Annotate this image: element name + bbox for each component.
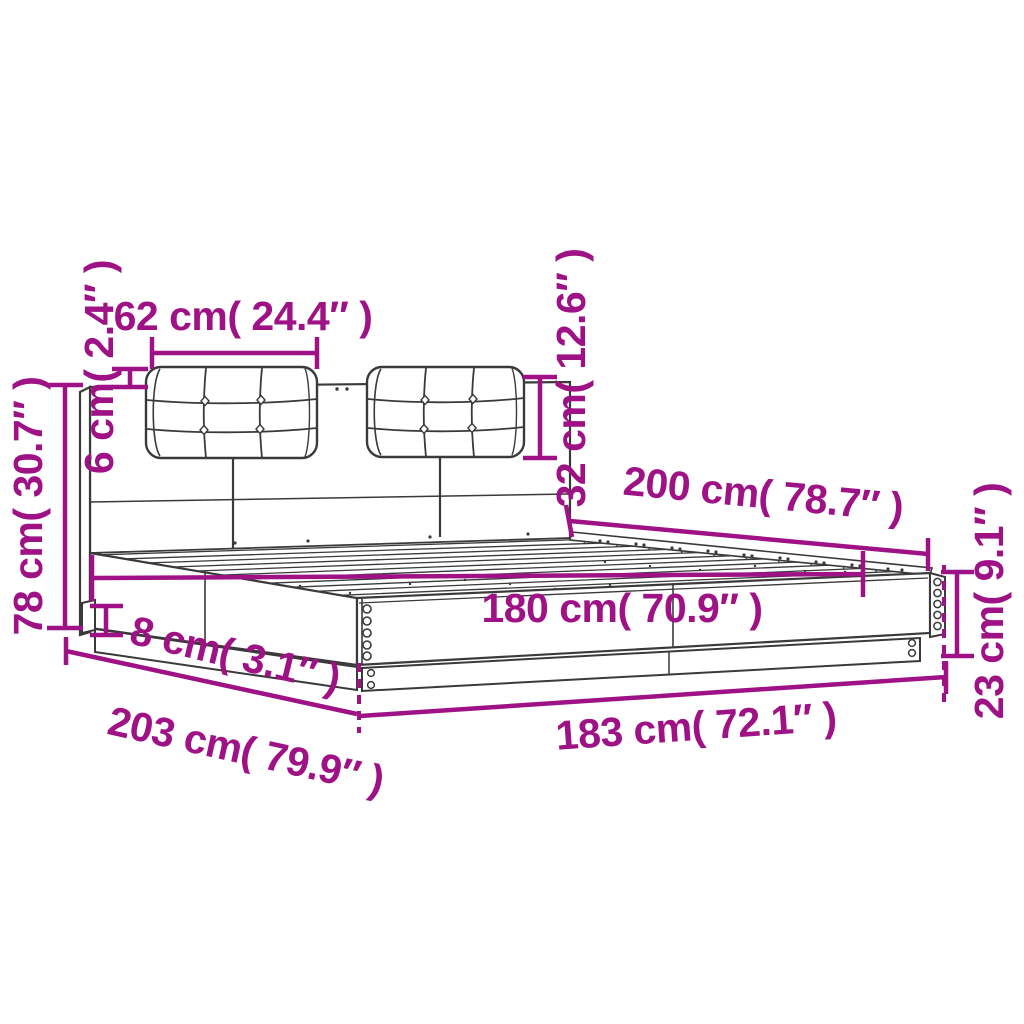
dim-label-headboard-height: 78 cm( 30.7″ ) [5, 377, 51, 636]
dim-label-cushion-height: 32 cm( 12.6″ ) [548, 249, 594, 508]
dim-label-frame-height: 23 cm( 9.1″ ) [966, 483, 1012, 719]
diagram-canvas: 62 cm( 24.4″ ) 6 cm( 2.4″ ) 78 cm( 30.7″… [0, 0, 1024, 1024]
dim-headboard-height: 78 cm( 30.7″ ) [5, 377, 83, 636]
bed-dimension-diagram: 62 cm( 24.4″ ) 6 cm( 2.4″ ) 78 cm( 30.7″… [0, 0, 1024, 1024]
cushion-right [367, 367, 524, 457]
dim-label-cushion-depth: 6 cm( 2.4″ ) [76, 260, 122, 474]
dim-label-cushion-width: 62 cm( 24.4″ ) [114, 293, 373, 339]
dim-label-inner-width: 180 cm( 70.9″ ) [481, 585, 762, 631]
dim-label-outer-width: 183 cm( 72.1″ ) [554, 693, 838, 758]
dim-frame-height: 23 cm( 9.1″ ) [941, 483, 1012, 719]
cushion-left [146, 367, 317, 458]
dim-cushion-width: 62 cm( 24.4″ ) [114, 293, 373, 369]
dim-label-inner-length: 200 cm( 78.7″ ) [621, 458, 905, 531]
